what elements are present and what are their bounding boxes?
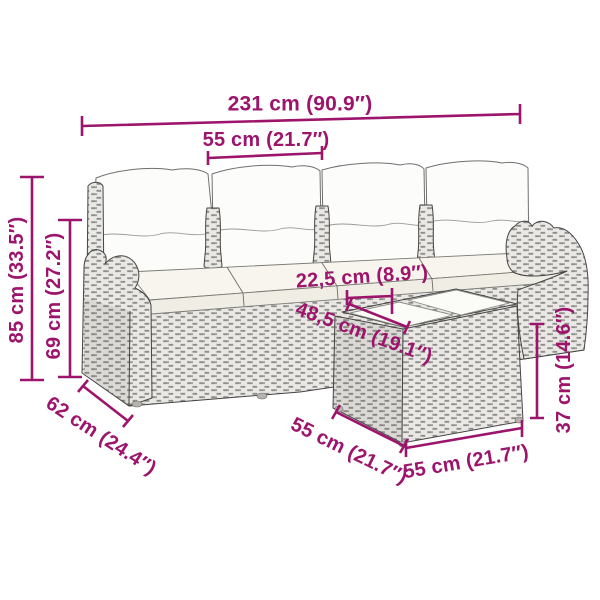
- dim-table-front-label: 55 cm (21.7″): [402, 441, 531, 484]
- dim-seat-width-label: 55 cm (21.7″): [203, 129, 330, 151]
- dimension-diagram-canvas: 231 cm (90.9″) 55 cm (21.7″) 85 cm (33.5…: [0, 0, 600, 600]
- footstool-right-face: [402, 306, 523, 443]
- dimension-total-height: 85 cm (33.5″): [6, 177, 44, 380]
- dim-total-width-label: 231 cm (90.9″): [228, 93, 373, 116]
- dim-total-height-label: 85 cm (33.5″): [6, 217, 28, 344]
- baluster-post-1: [204, 208, 222, 277]
- dimension-back-height: 69 cm (27.2″): [43, 220, 82, 377]
- dimension-seat-width: 55 cm (21.7″): [203, 129, 330, 165]
- dim-back-height-label: 69 cm (27.2″): [43, 233, 65, 360]
- dimension-table-height: 37 cm (14.6″): [530, 307, 575, 434]
- product-dimension-image: 231 cm (90.9″) 55 cm (21.7″) 85 cm (33.5…: [0, 0, 600, 600]
- dim-table-height-label: 37 cm (14.6″): [553, 307, 575, 434]
- sofa-illustration: [82, 161, 588, 447]
- left-side-shade: [84, 298, 130, 406]
